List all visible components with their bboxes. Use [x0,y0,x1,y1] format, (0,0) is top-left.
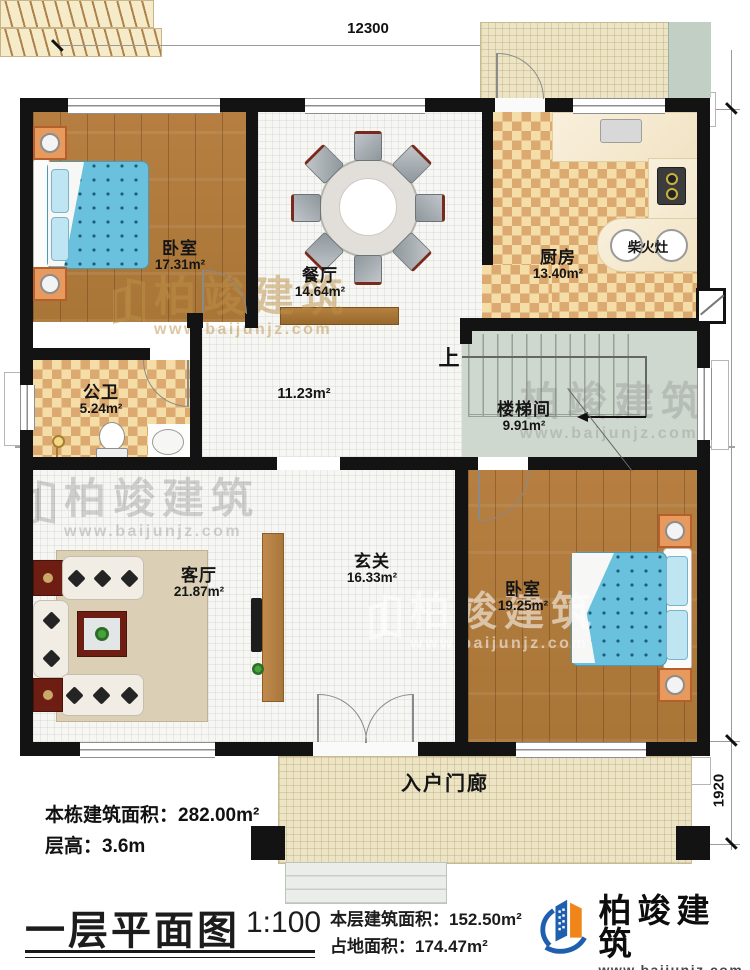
wood-stove-text: 柴火灶 [628,240,669,255]
wall [246,112,258,322]
chair [354,131,382,161]
chimney-flue [696,288,726,324]
window [68,98,220,114]
stair-direction-line [462,356,646,358]
burner-icon [666,188,678,200]
sofa-left [33,600,69,678]
wall [190,313,202,470]
chair [291,194,321,222]
nightstand [658,668,692,702]
company-url: www.baijunjz.com [598,963,750,970]
plan-scale: 1:100 [246,906,321,940]
room-name: 公卫 [83,384,119,402]
wall [460,318,697,331]
room-area: 13.40m² [533,267,583,282]
kitchen-sink [600,119,642,143]
tv [251,598,262,652]
floor-height-note: 层高：3.6m [45,831,145,858]
coffee-table [77,611,127,657]
room-name: 玄关 [354,553,390,571]
room-name: 客厅 [181,567,217,585]
flue-diagonal [700,295,724,315]
wall [245,313,258,328]
bathroom-sink [152,429,184,455]
side-table [33,678,63,712]
room-name: 卧室 [162,240,198,258]
stair-direction-line [588,416,646,418]
room-label-kitchen: 厨房 13.40m² [518,249,598,282]
back-porch-steps [668,22,711,98]
title-underline [25,950,315,953]
floor-drain [52,435,65,448]
dimension-value: 1920 [711,774,728,807]
window [516,742,646,758]
cushion [120,686,138,704]
building-area-text: 本栋建筑面积：282.00m² [45,805,259,826]
room-label-foyer: 玄关 16.33m² [333,553,411,586]
wall [455,470,468,742]
room-label-dining: 餐厅 14.64m² [282,267,358,300]
room-label-living: 客厅 21.87m² [160,567,238,600]
room-area: 14.64m² [295,285,345,300]
room-name: 楼梯间 [497,401,551,419]
plant-icon [95,627,109,641]
company-name: 柏竣建筑 [598,894,750,960]
room-label-bedroom-1: 卧室 17.31m² [143,240,217,273]
lamp-icon [665,675,685,695]
entry-door-opening [313,742,418,756]
floor-height-text: 层高：3.6m [45,836,145,857]
sofa-top [62,556,144,600]
sideboard [280,307,399,325]
room-name: 厨房 [540,249,576,267]
porch-column [251,826,285,860]
medallion-icon [43,690,53,700]
wall [220,98,305,112]
wall [215,742,313,756]
wardrobe [0,28,162,57]
sofa-bottom [60,674,144,716]
room-area: 17.31m² [155,258,205,273]
room-name: 入户门廊 [401,773,489,795]
wood-stove-label: 柴火灶 [607,236,689,256]
room-name: 卧室 [505,581,541,599]
pillow [51,217,69,261]
company-logo: 柏竣建筑 www.baijunjz.com [538,894,750,970]
wall [697,98,710,368]
room-label-bathroom: 公卫 5.24m² [64,384,138,417]
pillow [666,610,688,660]
wall [20,98,33,385]
window [80,742,215,758]
room-area: 19.25m² [498,599,548,614]
room-label-hallway: 11.23m² [264,386,344,402]
cushion [120,569,138,587]
room-name: 餐厅 [302,267,338,285]
burner-icon [666,173,678,185]
room-area: 16.33m² [347,571,397,586]
window [20,385,35,430]
room-label-entry-porch: 入户门廊 [390,767,500,796]
building-area-note: 本栋建筑面积：282.00m² [45,800,259,827]
floor-plan-canvas: 卧室 17.31m² 餐厅 14.64m² 厨房 13.40m² 公卫 5.24… [0,0,750,970]
wall [20,348,150,360]
floor-area-text: 本层建筑面积：152.50m² [330,910,522,929]
wardrobe [0,0,154,28]
wall [646,742,710,756]
wall [482,98,493,265]
wall [20,457,277,470]
wall [340,457,478,470]
nightstand [658,514,692,548]
window [573,98,665,114]
wall [528,457,697,470]
wall [697,440,710,756]
room-area: 5.24m² [80,402,123,417]
porch-column [676,826,710,860]
gas-stove [657,167,686,205]
wall [20,430,33,756]
lamp-icon [40,274,60,294]
medallion-icon [43,573,53,583]
chair [354,255,382,285]
lamp-icon [40,133,60,153]
pillow [666,556,688,606]
window [305,98,425,114]
lamp-icon [665,521,685,541]
wall [545,98,573,112]
cushion [94,569,112,587]
footprint-area-note: 占地面积：174.47m² [330,932,488,957]
door-opening [495,98,545,112]
room-area: 11.23m² [277,386,330,402]
cushion [42,649,60,667]
title-underline-thin [25,957,315,958]
nightstand [33,126,67,160]
cushion [67,569,85,587]
room-area: 21.87m² [174,585,224,600]
room-label-bedroom-2: 卧室 19.25m² [487,581,559,614]
toilet [99,422,125,451]
dining-table-center [339,178,397,236]
room-area: 9.91m² [503,419,546,434]
dimension-top-width: 12300 [338,20,398,37]
cushion [42,611,60,629]
plant-icon [252,663,264,675]
stair-direction-line [645,356,647,417]
chair [415,194,445,222]
room-label-stairwell: 楼梯间 9.91m² [484,401,564,434]
wall [418,742,516,756]
nightstand [33,267,67,301]
floor-area-note: 本层建筑面积：152.50m² [330,905,522,930]
dimension-line-right [731,50,732,850]
tv-cabinet [262,533,284,702]
up-text: 上 [439,347,460,370]
footprint-area-text: 占地面积：174.47m² [330,937,488,956]
wall [460,318,472,344]
stair-up-label: 上 [436,342,462,372]
plan-title: 一层平面图 [25,898,240,956]
pillow [51,169,69,213]
dimension-value: 12300 [347,20,389,37]
cushion [93,686,111,704]
dimension-porch-depth: 1920 [711,771,728,811]
side-table [33,560,63,596]
cushion [65,686,83,704]
wall [20,742,80,756]
stairwell-window-sill [711,360,729,450]
company-logo-icon [538,894,590,956]
entry-steps [285,862,447,904]
window [697,368,712,440]
